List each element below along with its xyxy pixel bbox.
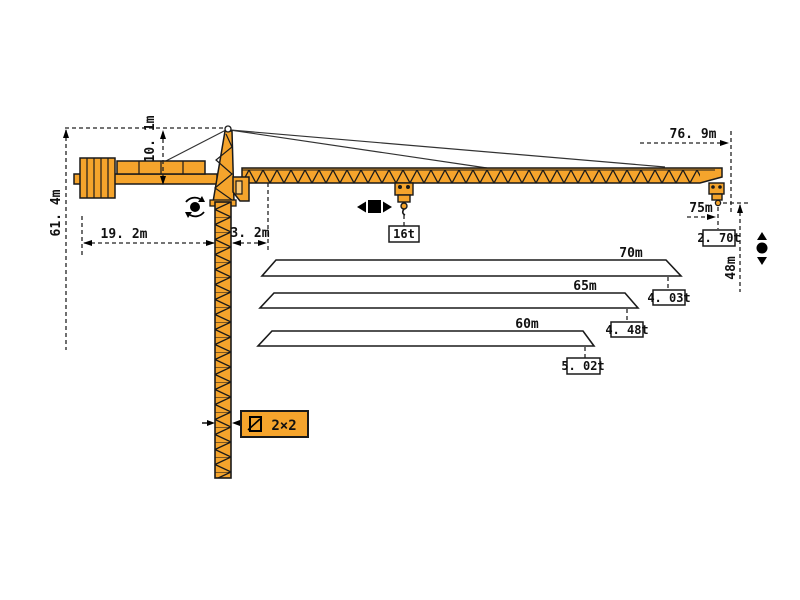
apex-pin (225, 126, 231, 132)
jib-60m-load-text: 5. 02t (561, 359, 604, 373)
trolley-travel-icon (357, 200, 392, 213)
jib-65m-length-text: 65m (573, 279, 597, 294)
trolley-load-text: 16t (393, 227, 415, 241)
crane-diagram-svg: 16t 2. 70t 61. 4m (0, 0, 800, 600)
hoist-icon (757, 232, 768, 265)
jib-option-65m: 65m 4. 48t (260, 279, 649, 337)
jib-70m-length-text: 70m (619, 246, 643, 261)
total-height-text: 61. 4m (49, 189, 64, 236)
jib-70m-load-text: 4. 03t (647, 291, 690, 305)
crane-load-diagram: 16t 2. 70t 61. 4m (0, 0, 800, 600)
max-hook-radius-text: 75m (689, 201, 713, 216)
dimension-counter-radius: 19. 2m (82, 216, 215, 256)
jib-65m-load-text: 4. 48t (605, 323, 648, 337)
tip-load-label: 2. 70t (697, 230, 740, 246)
mast-section-text: 2×2 (271, 418, 296, 434)
tower-head (213, 126, 234, 202)
dimension-hook-height: 48m (723, 203, 748, 292)
jib-option-60m: 60m 5. 02t (258, 317, 605, 374)
rear-offset-text: 3. 2m (230, 226, 269, 241)
trolley (395, 183, 413, 202)
pendant-lines (162, 130, 665, 168)
max-length-text: 76. 9m (670, 127, 717, 142)
jib-60m-length-text: 60m (515, 317, 539, 332)
tower-mast (215, 202, 231, 478)
counter-radius-text: 19. 2m (101, 227, 148, 242)
head-height-text: 10. 1m (143, 115, 158, 162)
hook-height-text: 48m (724, 256, 739, 280)
tip-hook (715, 200, 720, 205)
operator-cab (233, 177, 249, 201)
tip-load-text: 2. 70t (697, 231, 740, 245)
slewing-icon (185, 196, 205, 218)
counterweight (80, 158, 115, 198)
main-jib (242, 168, 722, 183)
cab-window (236, 181, 242, 194)
dimension-max-hook-radius: 75m (687, 201, 716, 220)
hook (401, 203, 407, 215)
tip-trolley (709, 183, 724, 200)
trolley-load-label: 16t (389, 226, 419, 242)
